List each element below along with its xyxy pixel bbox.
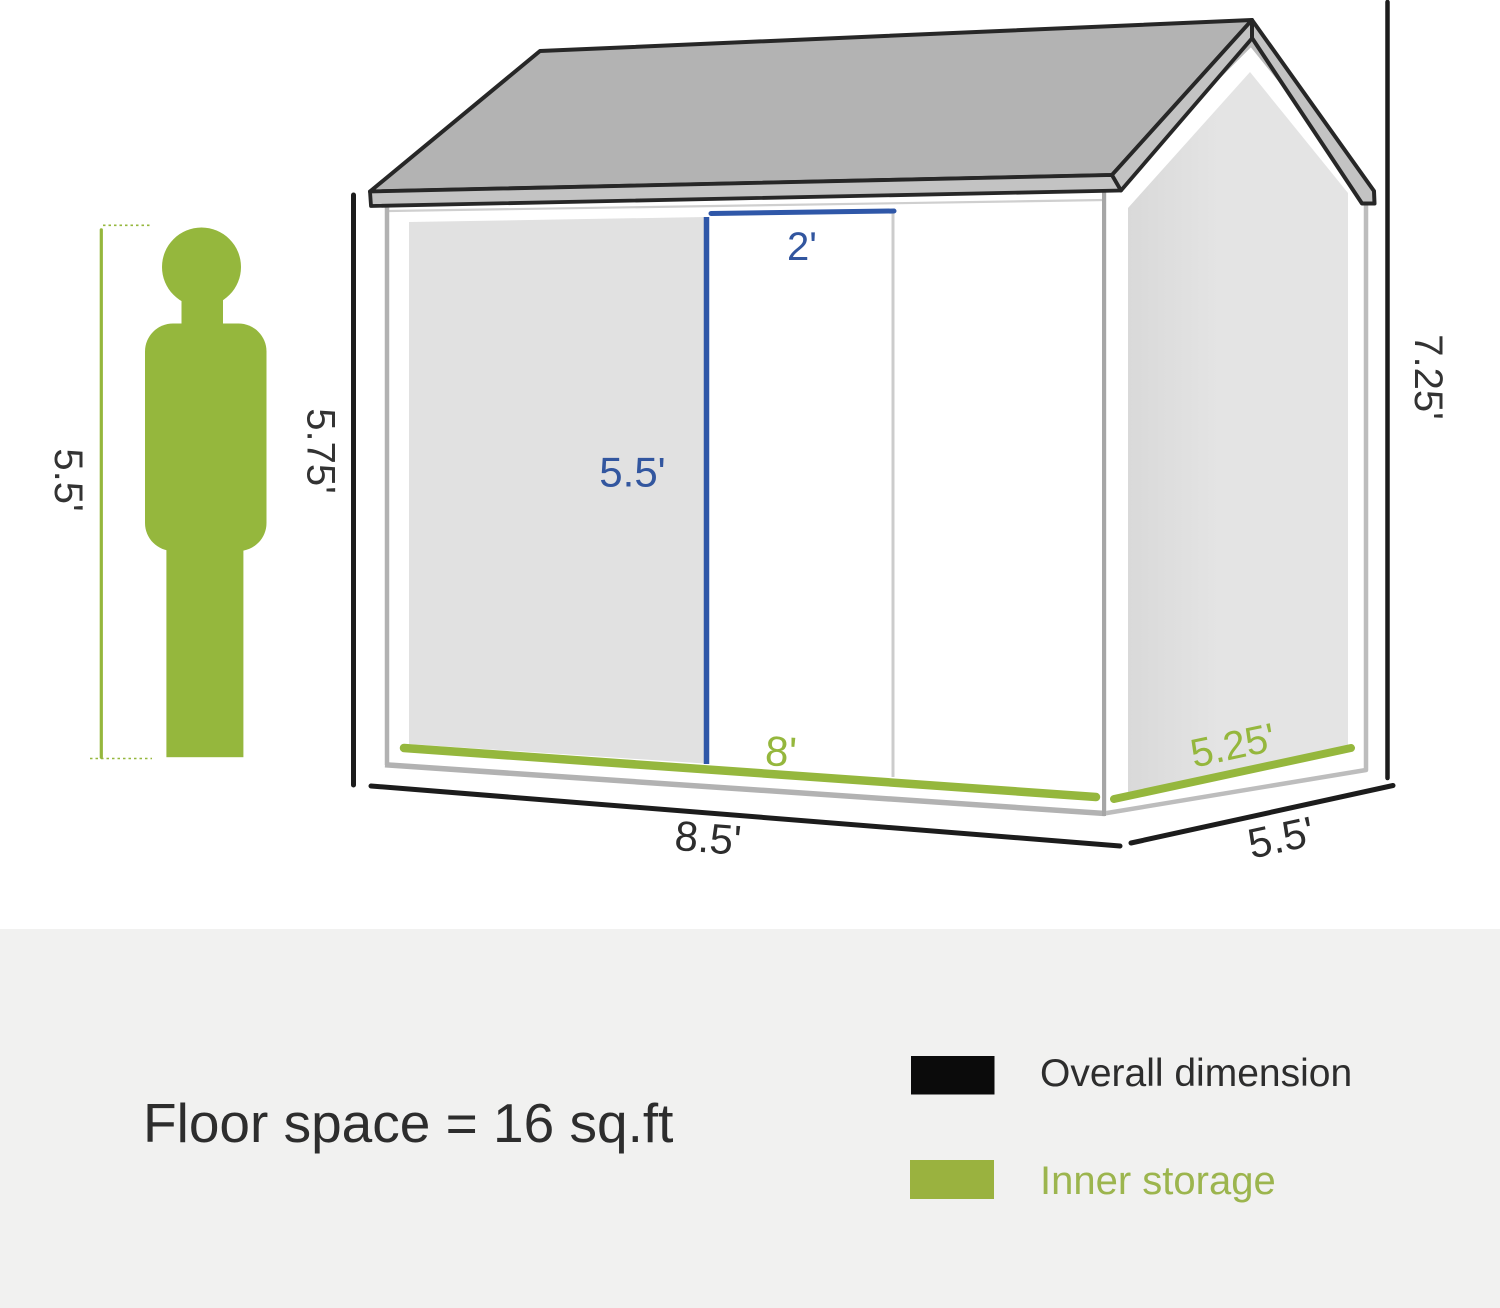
svg-text:7.25': 7.25' bbox=[1406, 334, 1450, 420]
svg-text:Floor space = 16 sq.ft: Floor space = 16 sq.ft bbox=[143, 1092, 673, 1154]
svg-text:5.75': 5.75' bbox=[299, 408, 343, 494]
svg-text:2': 2' bbox=[787, 225, 817, 269]
svg-text:Overall dimension: Overall dimension bbox=[1040, 1052, 1352, 1095]
svg-text:Inner storage: Inner storage bbox=[1040, 1159, 1276, 1203]
svg-text:8.5': 8.5' bbox=[673, 812, 743, 864]
svg-text:8': 8' bbox=[764, 727, 798, 776]
svg-text:5.5': 5.5' bbox=[46, 448, 90, 511]
svg-text:5.5': 5.5' bbox=[599, 449, 665, 496]
